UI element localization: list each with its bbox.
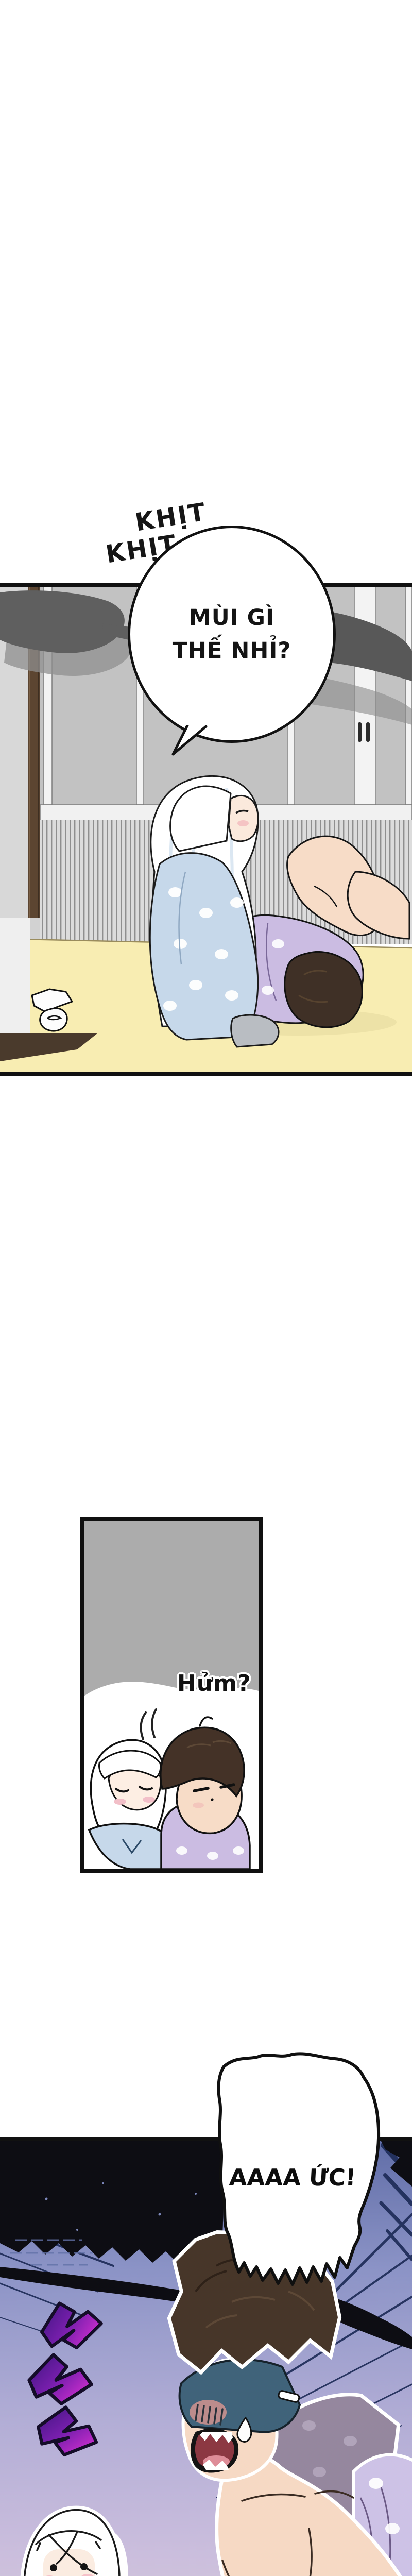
girl-face [229, 795, 258, 841]
girl3-face [43, 2549, 95, 2576]
shout-bubble: AAAA ỨC! [205, 2052, 386, 2312]
girl-cushion [231, 1015, 279, 1047]
speech-bubble-tail [170, 725, 211, 756]
speech-hum: Hửm? [177, 1670, 251, 1697]
girl3-eye-right [80, 2563, 88, 2570]
speech-bubble-smell-line2: THẾ NHỈ? [173, 634, 291, 668]
chibi-girl [89, 1740, 166, 1869]
comic-page: KHỊT KHỊT MÙI GÌ THẾ NHỈ? [0, 0, 412, 2576]
panel1-border-bottom [0, 1072, 412, 1076]
girl3-eye-left [50, 2564, 57, 2571]
girl-blush [237, 820, 249, 826]
man-screaming-mouth [191, 2428, 238, 2473]
speech-bubble-smell-line1: MÙI GÌ [189, 601, 274, 635]
wall-base [0, 918, 30, 1037]
shout-text: AAAA ỨC! [204, 2164, 381, 2191]
speech-bubble-smell: MÙI GÌ THẾ NHỈ? [128, 526, 336, 743]
